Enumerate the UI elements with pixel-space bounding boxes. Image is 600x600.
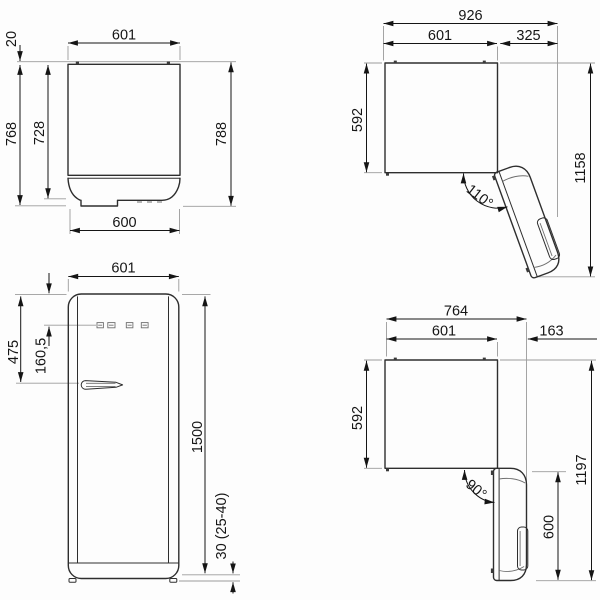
rear-cabinet-outline: [68, 62, 180, 207]
front-view: 601 475 160,5 1500 30 (25-40): [6, 261, 240, 594]
rear-view-dimension-lines: [20, 43, 231, 231]
top90-dimension-lines: [367, 319, 598, 580]
dim-top110-depth: 592: [350, 108, 366, 132]
top-view-door-110: 926 601 325 592 1158 110°: [350, 8, 595, 280]
door-open-110: [491, 162, 564, 280]
front-logo-badge: [97, 323, 148, 328]
technical-drawing: 601 20 768 728 788 600: [0, 0, 600, 600]
dim-top110-door-projection: 325: [516, 28, 540, 44]
rear-compressor-cover: [68, 178, 180, 206]
dimension-drawing-svg: 601 20 768 728 788 600: [0, 0, 600, 600]
dim-front-handle-height: 475: [6, 340, 22, 364]
dim-top110-overall-depth: 1158: [573, 152, 589, 183]
front-door-handle: [81, 381, 122, 390]
dim-rear-bottom-width: 600: [112, 215, 136, 231]
dim-rear-height-cabinet: 768: [4, 122, 20, 146]
dim-top90-door-projection: 163: [539, 324, 563, 340]
dim-front-height: 1500: [190, 421, 206, 453]
dim-rear-height-total: 788: [214, 122, 230, 146]
door-open-90: [491, 468, 528, 580]
dim-rear-height-inner: 728: [32, 121, 48, 145]
dim-rear-hinge-offset: 20: [4, 31, 20, 47]
dim-top110-cabinet-width: 601: [428, 28, 452, 44]
dim-top110-overall-width: 926: [458, 8, 482, 24]
dim-rear-top-width: 601: [112, 28, 136, 44]
front-extension-lines: [15, 279, 240, 581]
dim-top90-overall-width: 764: [444, 304, 468, 320]
top-view-door-90: 764 601 163 592 600 1197 90°: [350, 304, 597, 581]
top110-dimension-lines: [367, 24, 591, 277]
top90-cabinet-outline: [385, 358, 498, 472]
dim-top90-door-depth: 600: [542, 515, 558, 539]
top90-extension-lines: [364, 322, 596, 581]
rear-hinge-pin-right: [167, 62, 170, 65]
dim-front-width: 601: [111, 261, 135, 277]
top110-cabinet-outline: [385, 61, 498, 176]
front-foot-right: [170, 579, 177, 583]
front-door-outline: [68, 294, 179, 582]
rear-view: 601 20 768 728 788 600: [4, 28, 236, 235]
dim-front-panel-height: 160,5: [34, 338, 50, 374]
dim-front-feet-height: 30 (25-40): [214, 493, 230, 560]
dim-top90-cabinet-width: 601: [432, 324, 456, 340]
front-foot-left: [69, 579, 76, 583]
rear-hinge-pin-left: [76, 62, 79, 65]
dim-top90-overall-depth: 1197: [574, 454, 590, 485]
dim-top90-depth: 592: [350, 406, 366, 430]
